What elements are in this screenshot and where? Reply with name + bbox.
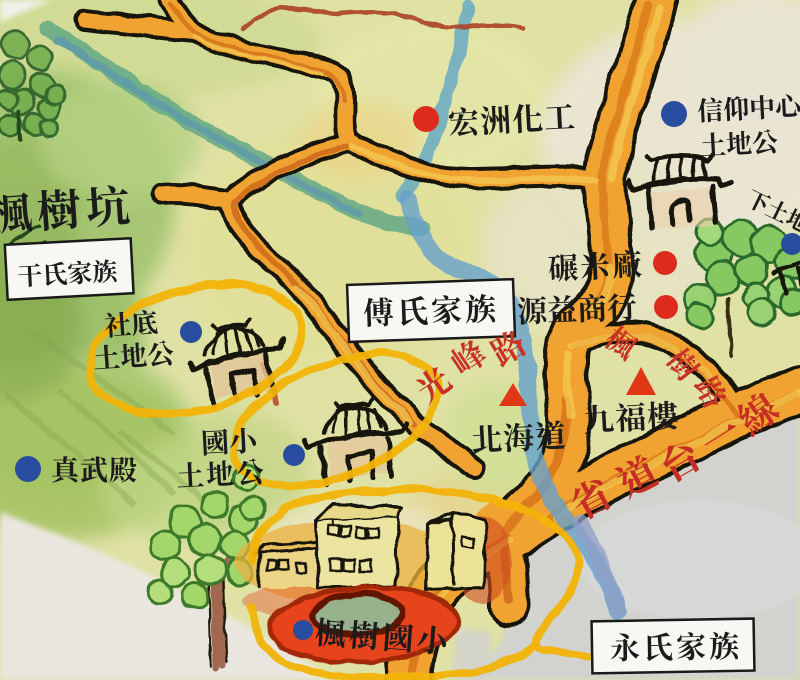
svg-text:土地公: 土地公 bbox=[92, 332, 176, 377]
svg-text:楓樹國小: 楓樹國小 bbox=[314, 608, 453, 662]
svg-text:北海道: 北海道 bbox=[470, 410, 568, 460]
svg-text:楓樹坑: 楓樹坑 bbox=[0, 170, 137, 244]
svg-text:傅氏家族: 傅氏家族 bbox=[362, 284, 499, 334]
svg-text:土地公: 土地公 bbox=[175, 451, 267, 496]
svg-text:永氏家族: 永氏家族 bbox=[610, 622, 743, 668]
svg-text:干氏家族: 干氏家族 bbox=[16, 252, 118, 293]
svg-text:碾米廠: 碾米廠 bbox=[547, 240, 645, 289]
svg-text:宏洲化工: 宏洲化工 bbox=[447, 92, 577, 144]
svg-text:信仰中心: 信仰中心 bbox=[696, 86, 800, 128]
svg-text:九福樓: 九福樓 bbox=[582, 390, 680, 440]
svg-text:真武殿: 真武殿 bbox=[51, 449, 138, 489]
svg-text:土地公: 土地公 bbox=[699, 122, 779, 163]
